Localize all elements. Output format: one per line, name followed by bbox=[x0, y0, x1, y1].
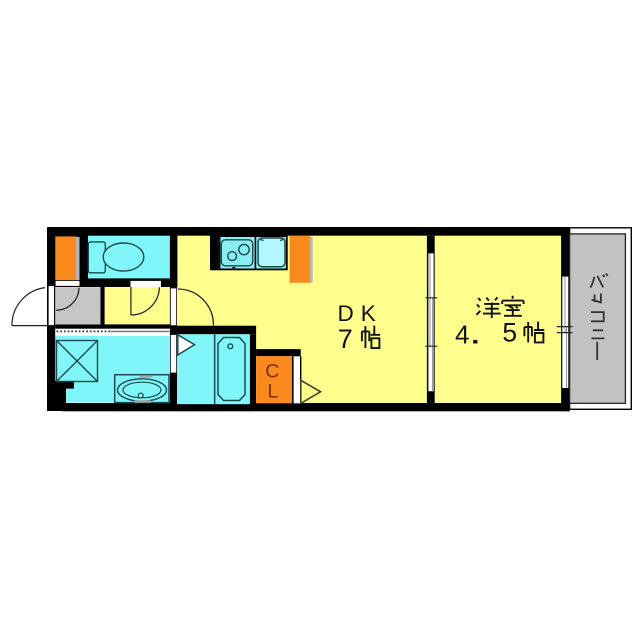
svg-text:5: 5 bbox=[502, 318, 517, 348]
svg-text:C: C bbox=[265, 361, 279, 383]
svg-text:DK: DK bbox=[338, 301, 383, 326]
svg-text:L: L bbox=[267, 380, 278, 402]
svg-text:7: 7 bbox=[338, 324, 353, 354]
svg-text:4: 4 bbox=[455, 320, 469, 350]
